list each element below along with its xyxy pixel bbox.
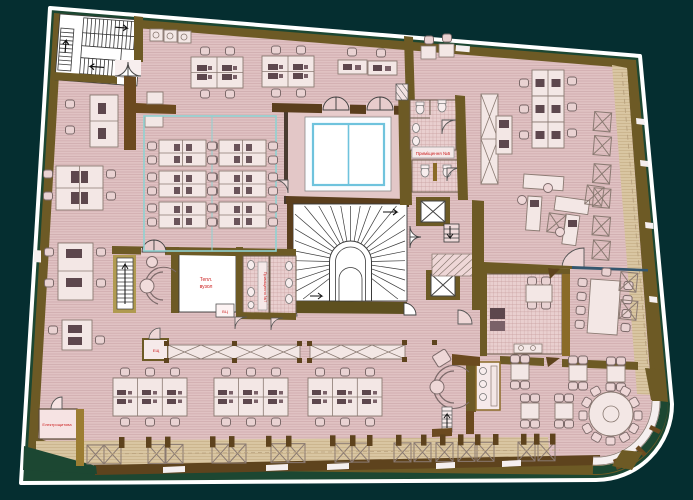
svg-text:Тепл.: Тепл. — [200, 277, 213, 283]
svg-text:Приміщення №5: Приміщення №5 — [416, 151, 451, 156]
svg-text:ВЦ: ВЦ — [222, 309, 228, 314]
svg-text:Електрощитова: Електрощитова — [42, 422, 72, 427]
svg-text:вузол: вузол — [200, 284, 213, 290]
svg-text:ЕЩ: ЕЩ — [153, 348, 160, 353]
svg-text:Приміщення №7: Приміщення №7 — [263, 272, 268, 303]
